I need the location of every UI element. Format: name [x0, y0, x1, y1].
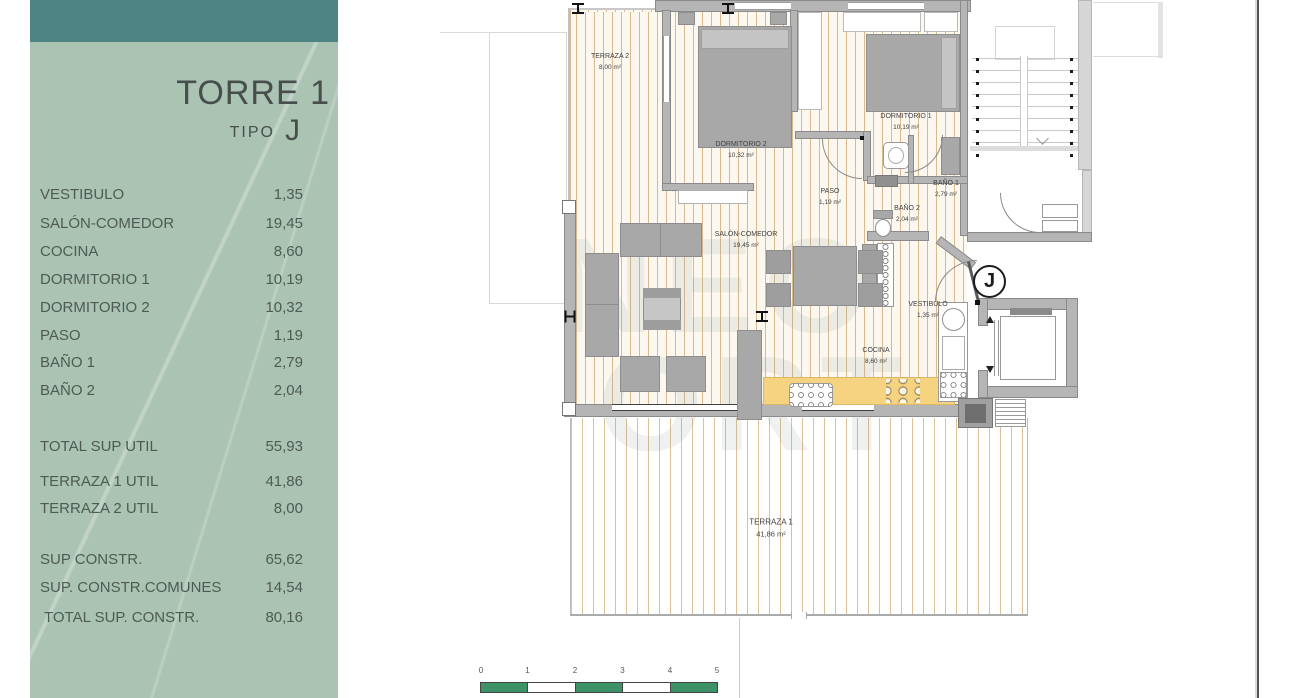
bathtub-basin: [888, 147, 904, 164]
closet: [1042, 204, 1078, 218]
page-edge-line: [1257, 0, 1259, 698]
terrace-row: TERRAZA 1 UTIL41,86: [40, 473, 303, 493]
elevator-door: [1010, 308, 1052, 315]
sofa-cushion-line: [660, 224, 661, 256]
i-beam-column-icon: [572, 3, 584, 14]
bed-pillows: [701, 29, 789, 49]
stair-posts: [1070, 58, 1073, 158]
wall: [960, 0, 968, 236]
scale-segment: [623, 683, 670, 692]
scale-bar: 0 1 2 3 4 5: [480, 666, 718, 694]
scale-tick: 5: [715, 666, 719, 675]
unit-type: TIPOJ: [30, 114, 300, 148]
closet-row: [924, 12, 958, 32]
wall: [1082, 170, 1092, 236]
dining-chair: [766, 283, 791, 307]
elevator-wall: [978, 386, 1078, 398]
window: [663, 36, 670, 102]
room-label-terraza1: TERRAZA 141,86 m²: [749, 516, 793, 539]
room-label-bano2: BAÑO 22,04 m²: [894, 204, 920, 224]
tipo-label: TIPO: [230, 124, 275, 141]
column: [562, 402, 576, 416]
closet-row: [843, 12, 921, 32]
dining-chair: [766, 250, 791, 274]
room-label-paso: PASO1,19 m²: [819, 187, 841, 207]
dining-chair: [858, 283, 883, 307]
elevator-wall: [1066, 298, 1078, 398]
scale-tick: 1: [525, 666, 529, 675]
stair-landing-edge: [970, 146, 1078, 151]
stair-stringer: [1020, 56, 1028, 150]
guide-line: [739, 618, 740, 698]
guide-line: [1158, 2, 1163, 58]
sofa: [620, 223, 702, 257]
elevator-rails: [994, 320, 999, 376]
area-row: DORMITORIO 210,32: [40, 299, 303, 319]
column: [562, 200, 576, 214]
unit-marker-badge: J: [973, 265, 1006, 298]
kitchen-sink: [789, 383, 833, 407]
i-beam-column-icon: [722, 3, 734, 14]
wall: [564, 202, 576, 417]
armchair: [620, 356, 660, 392]
elevator-wall: [978, 370, 988, 398]
guide-line: [440, 32, 490, 33]
room-label-cocina: COCINA8,60 m²: [862, 346, 889, 366]
guide-line: [1093, 56, 1163, 57]
cooktop: [886, 379, 920, 403]
room-label-dormitorio2: DORMITORIO 210,32 m²: [715, 140, 766, 160]
outdoor-washer-drum: [965, 404, 986, 423]
door-arc: [1000, 193, 1040, 233]
coffee-table-band: [643, 320, 681, 330]
wall: [863, 131, 871, 181]
toilet-tank: [873, 210, 893, 219]
scale-tick: 3: [620, 666, 624, 675]
tipo-value: J: [285, 114, 300, 147]
scale-segment: [671, 683, 717, 692]
window: [848, 2, 924, 10]
wall: [795, 131, 869, 139]
wardrobe: [678, 190, 748, 204]
scale-bar-segments: [480, 682, 718, 693]
coffee-table-band: [643, 288, 681, 298]
door-pivot: [975, 300, 980, 305]
window-glazing: [612, 404, 746, 411]
constr-row: SUP. CONSTR.COMUNES14,54: [40, 579, 303, 599]
sofa-cushion-line: [586, 304, 618, 305]
scale-tick: 0: [479, 666, 483, 675]
room-label-dormitorio1: DORMITORIO 110,19 m²: [880, 112, 931, 132]
dining-chair: [858, 250, 883, 274]
area-row: BAÑO 12,79: [40, 354, 303, 374]
scale-segment: [528, 683, 575, 692]
terrace-row: TERRAZA 2 UTIL8,00: [40, 500, 303, 520]
scale-tick: 2: [573, 666, 577, 675]
dining-table: [793, 246, 857, 306]
total-util-row: TOTAL SUP UTIL55,93: [40, 438, 303, 458]
wall: [967, 232, 1092, 242]
area-row: BAÑO 22,04: [40, 382, 303, 402]
bathroom-sink: [875, 175, 898, 187]
area-row: PASO1,19: [40, 327, 303, 347]
stair-posts: [976, 58, 979, 158]
sink-drainer: [940, 372, 967, 398]
elevator-cabin: [1000, 316, 1056, 380]
scale-segment: [481, 683, 528, 692]
window: [735, 2, 791, 10]
nightstand: [678, 12, 695, 25]
toilet-bowl: [875, 219, 891, 237]
floorplan-sheet: TORRE 1 TIPOJ VESTIBULO1,35 SALÓN-COMEDO…: [0, 0, 1290, 698]
closet: [1042, 220, 1078, 232]
total-constr-row: TOTAL SUP. CONSTR.80,16: [44, 609, 303, 629]
wardrobe: [798, 12, 822, 110]
area-row: DORMITORIO 110,19: [40, 271, 303, 291]
shower-cabinet: [941, 137, 960, 175]
room-label-bano1: BAÑO 12,79 m²: [933, 179, 959, 199]
area-row: VESTIBULO1,35: [40, 186, 303, 206]
wall: [1078, 0, 1092, 170]
constr-row: SUP CONSTR.65,62: [40, 551, 303, 571]
elevator-arrow-down-icon: [986, 366, 994, 373]
sofa: [585, 253, 619, 357]
bed-pillows: [941, 37, 957, 109]
kitchen-unit: [942, 336, 965, 370]
room-label-terraza2: TERRAZA 28,00 m²: [591, 52, 629, 72]
armchair: [666, 356, 706, 392]
guide-line: [1093, 2, 1163, 3]
ac-grille: [995, 399, 1026, 427]
i-beam-column-icon: [756, 311, 768, 322]
terrace-notch: [791, 612, 807, 619]
room-label-vestibulo: VESTIBULO1,35 m²: [908, 300, 947, 320]
area-row: SALÓN-COMEDOR19,45: [40, 215, 303, 235]
elevator-arrow-up-icon: [986, 316, 994, 323]
nightstand: [770, 12, 787, 25]
stair-landing: [995, 26, 1055, 60]
sideboard: [737, 330, 762, 420]
scale-segment: [576, 683, 623, 692]
tower-title: TORRE 1: [30, 74, 330, 113]
room-label-salon: SALÓN-COMEDOR19,45 m²: [715, 230, 778, 250]
sidebar-header-band: [30, 0, 338, 42]
scale-tick: 4: [668, 666, 672, 675]
door-pivot: [860, 136, 864, 140]
area-row: COCINA8,60: [40, 243, 303, 263]
i-beam-column-icon: [565, 311, 576, 323]
